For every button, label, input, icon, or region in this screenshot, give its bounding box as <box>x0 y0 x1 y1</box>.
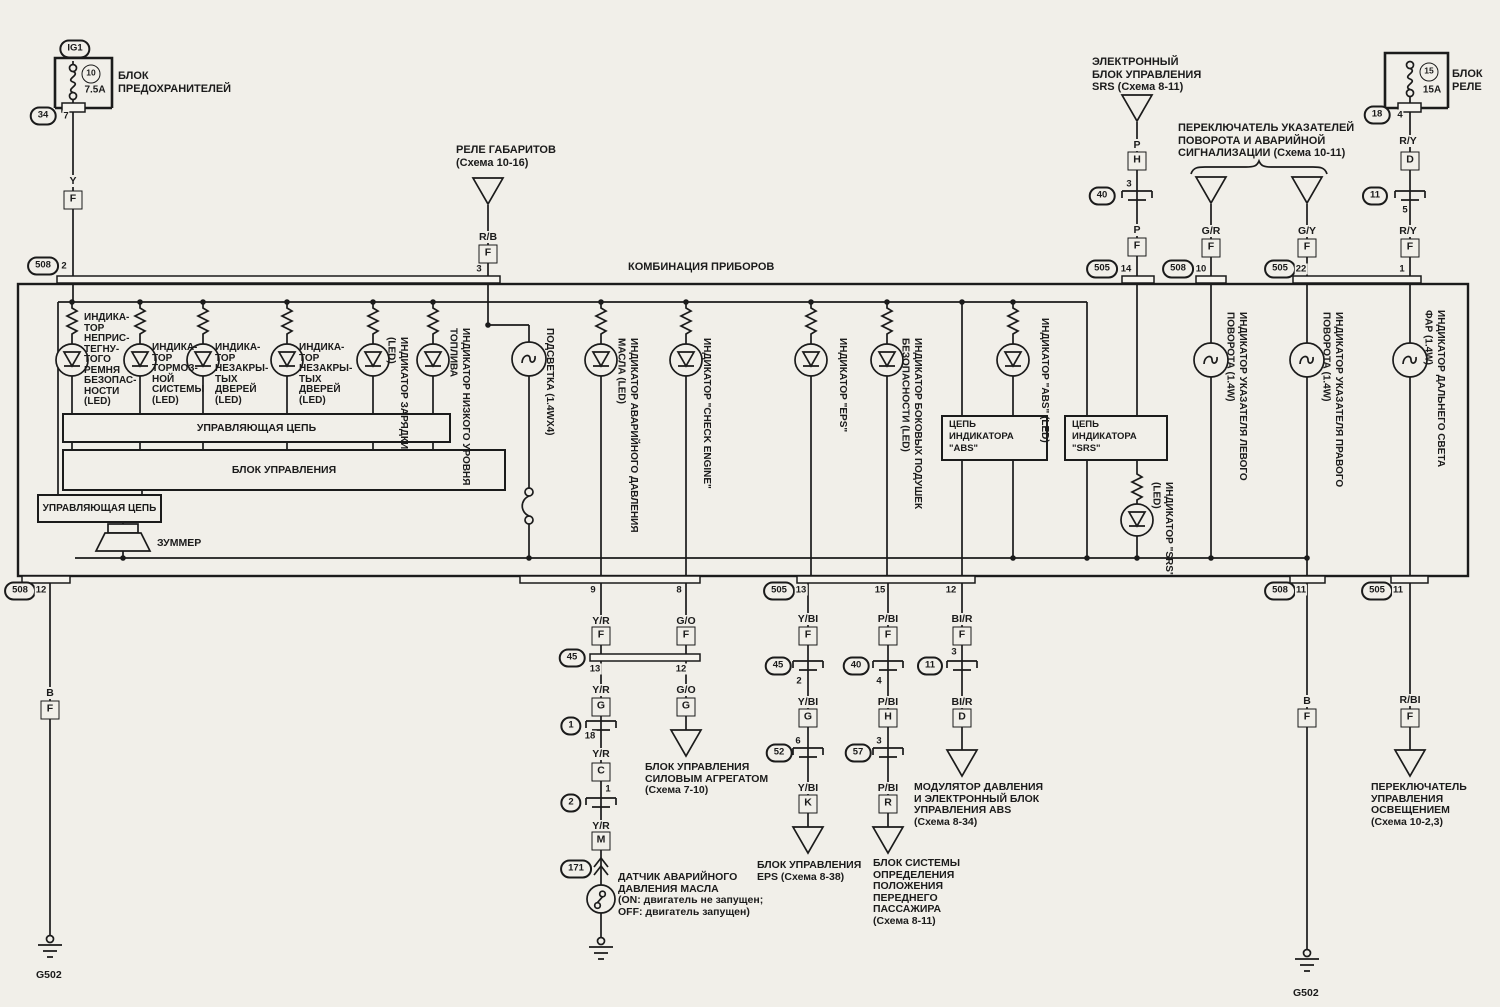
pin-letter-box: C <box>592 763 611 782</box>
wire-color: Y/BI <box>796 696 820 708</box>
source-arrow-icon <box>473 178 503 204</box>
dest-arrow-icon <box>793 827 823 853</box>
source-arrow-icon <box>1292 177 1322 203</box>
oil-pressure-sensor-icon <box>587 885 615 913</box>
source-arrow-icon <box>1196 177 1226 203</box>
pin-letter-box: F <box>1298 709 1317 728</box>
oil-sensor-label: ДАТЧИК АВАРИЙНОГО ДАВЛЕНИЯ МАСЛА (ON: дв… <box>618 872 778 918</box>
pin-letter-box: F <box>1128 238 1147 257</box>
wire-color: B <box>1301 695 1313 707</box>
pin-number: 14 <box>1120 264 1133 275</box>
dest-arrow-icon <box>947 750 977 776</box>
relay-block-label: БЛОК РЕЛЕ <box>1452 68 1483 93</box>
pin-letter-box: F <box>592 627 611 646</box>
indicator-label: ИНДИКАТОР "EPS" <box>821 338 848 450</box>
pin-number: 6 <box>794 736 801 747</box>
ground-icon <box>1295 950 1319 972</box>
pin-letter-box: M <box>592 832 611 851</box>
pin-number: 11 <box>1295 585 1307 596</box>
pin-letter-box: D <box>1401 152 1420 171</box>
pin-letter-box: F <box>953 627 972 646</box>
control-circuit-left-box: УПРАВЛЯЮЩАЯ ЦЕПЬ <box>37 494 162 523</box>
ground-label: G502 <box>36 970 62 981</box>
fuse-amps: 7.5A <box>83 85 106 96</box>
wire-color: R/Y <box>1397 135 1419 147</box>
wire-color: R/BI <box>1398 694 1423 706</box>
connector-oval: 11 <box>1362 187 1388 206</box>
pin-letter-box: F <box>1401 709 1420 728</box>
wire-color: P/BI <box>876 613 900 625</box>
indicator-label: ИНДИКАТОР НИЗКОГО УРОВНЯ ТОПЛИВА <box>444 328 471 490</box>
control-unit-box: БЛОК УПРАВЛЕНИЯ <box>62 449 506 491</box>
connector-oval: 52 <box>766 744 793 763</box>
connector-oval: 508 <box>1162 260 1194 279</box>
indicator-label: ИНДИКАТОР УКАЗАТЕЛЯ ЛЕВОГО ПОВОРОТА (1.4… <box>1221 312 1248 512</box>
wire-color: Y/R <box>590 748 612 760</box>
indicator-label: ПОДСВЕТКА (1.4WX4) <box>540 328 555 490</box>
indicator-label: ИНДИКАТОР "ABS" (LED) <box>1023 318 1050 468</box>
wire-color: B <box>44 687 56 699</box>
srs-ecu-label: ЭЛЕКТРОННЫЙ БЛОК УПРАВЛЕНИЯ SRS (Схема 8… <box>1092 56 1201 94</box>
connector-oval: 40 <box>843 657 870 676</box>
connector-oval: 505 <box>763 582 795 601</box>
fuse-block-outline <box>55 58 112 108</box>
pin-letter-box: K <box>799 795 818 814</box>
indicator-label: ИНДИКАТОР "CHECK ENGINE" <box>697 338 712 570</box>
pin-letter-box: F <box>64 191 83 210</box>
pin-number: 18 <box>584 731 597 742</box>
pin-letter-box: F <box>677 627 696 646</box>
pin-letter-box: D <box>953 709 972 728</box>
pin-number: 4 <box>1396 110 1403 121</box>
wire-color: BI/R <box>950 696 975 708</box>
parking-relay-label: РЕЛЕ ГАБАРИТОВ (Схема 10-16) <box>456 144 556 169</box>
connector-oval: 1 <box>560 717 581 736</box>
light-switch-label: ПЕРЕКЛЮЧАТЕЛЬ УПРАВЛЕНИЯ ОСВЕЩЕНИЕМ (Схе… <box>1371 782 1491 828</box>
connector-oval: 34 <box>30 107 57 126</box>
dest-arrow-icon <box>1395 750 1425 776</box>
pin-letter-box: F <box>479 245 498 264</box>
ground-icon <box>589 938 613 960</box>
indicator-label: ИНДИКА- ТОР ТОРМОЗ- НОЙ СИСТЕМЫ (LED) <box>152 343 210 406</box>
pin-number: 2 <box>60 261 67 272</box>
connector-oval: 40 <box>1089 187 1116 206</box>
pin-letter-box: G <box>592 698 611 717</box>
pin-letter-box: G <box>799 709 818 728</box>
eps-label: БЛОК УПРАВЛЕНИЯ EPS (Схема 8-38) <box>757 860 882 883</box>
pin-letter-box: F <box>1202 239 1221 258</box>
ground-icon <box>38 936 62 958</box>
wire-color: G/O <box>674 684 697 696</box>
indicator-label: ИНДИКАТОР АВАРИЙНОГО ДАВЛЕНИЯ МАСЛА (LED… <box>612 338 639 556</box>
pin-number: 12 <box>675 664 688 675</box>
connector-oval: 508 <box>1264 582 1296 601</box>
connector-oval: 45 <box>559 649 586 668</box>
fuse-amps: 15A <box>1422 85 1442 96</box>
buzzer-icon <box>96 524 150 551</box>
wire-color: Y/BI <box>796 613 820 625</box>
page-title: КОМБИНАЦИЯ ПРИБОРОВ <box>628 261 774 274</box>
wiring-diagram: УПРАВЛЯЮЩАЯ ЦЕПЬ БЛОК УПРАВЛЕНИЯ УПРАВЛЯ… <box>0 0 1500 1007</box>
pin-number: 3 <box>1125 179 1132 190</box>
fuse-number: 10 <box>82 65 101 84</box>
pin-number: 12 <box>945 585 958 596</box>
pin-number: 3 <box>950 647 957 658</box>
pin-number: 1 <box>1398 264 1405 275</box>
wire-color: Y/R <box>590 684 612 696</box>
wire-color: P/BI <box>876 782 900 794</box>
indicator-label: ИНДИКА- ТОР НЕЗАКРЫ- ТЫХ ДВЕРЕЙ (LED) <box>215 343 277 406</box>
pin-number: 5 <box>1401 205 1408 216</box>
wire-color: P <box>1131 224 1142 236</box>
connector-oval: 2 <box>560 794 581 813</box>
srs-indicator-circuit-box: ЦЕПЬ ИНДИКАТОРА "SRS" <box>1064 415 1168 461</box>
fuse-block-label: БЛОК ПРЕДОХРАНИТЕЛЕЙ <box>118 70 231 95</box>
indicator-label: ИНДИКАТОР УКАЗАТЕЛЯ ПРАВОГО ПОВОРОТА (1.… <box>1317 312 1344 512</box>
fuse-icon <box>70 65 77 100</box>
pin-letter-box: F <box>41 701 60 720</box>
pin-number: 3 <box>875 736 882 747</box>
pin-number: 12 <box>35 585 48 596</box>
indicator-label: ИНДИКАТОР ДАЛЬНЕГО СВЕТА ФАР (1.4W) <box>1419 310 1446 482</box>
pin-number: 4 <box>875 676 882 687</box>
indicator-label: ИНДИКАТОР ЗАРЯДКИ (LED) <box>382 337 409 467</box>
connector-oval: 505 <box>1086 260 1118 279</box>
pin-number: 9 <box>589 585 596 596</box>
pin-letter-box: H <box>879 709 898 728</box>
pin-number: 13 <box>589 664 602 675</box>
brace <box>1191 161 1327 174</box>
wire-color: G/R <box>1200 225 1223 237</box>
indicator-label: ИНДИКА- ТОР НЕПРИС- ТЕГНУ- ТОГО РЕМНЯ БЕ… <box>84 313 142 408</box>
indicator-label: ИНДИКАТОР БОКОВЫХ ПОДУШЕК БЕЗОПАСНОСТИ (… <box>896 338 923 548</box>
connector-oval: 45 <box>765 657 792 676</box>
turn-switch-label: ПЕРЕКЛЮЧАТЕЛЬ УКАЗАТЕЛЕЙ ПОВОРОТА И АВАР… <box>1178 122 1354 160</box>
illumination-switch-icon <box>522 488 533 524</box>
pin-letter-box: F <box>879 627 898 646</box>
connector-oval: 505 <box>1264 260 1296 279</box>
connector-oval: 18 <box>1364 106 1391 125</box>
connector-oval: 508 <box>4 582 36 601</box>
wire-color: P/BI <box>876 696 900 708</box>
wire-color: R/B <box>477 231 499 243</box>
ground-label: G502 <box>1293 988 1319 999</box>
connector-oval: IG1 <box>59 40 90 59</box>
pin-number: 7 <box>62 111 69 122</box>
relay-block-outline <box>1385 53 1448 108</box>
symbols <box>38 62 1427 972</box>
wire-color: BI/R <box>950 613 975 625</box>
connector-oval: 508 <box>27 257 59 276</box>
wire-color: R/Y <box>1397 225 1419 237</box>
pin-letter-box: G <box>677 698 696 717</box>
pin-number: 3 <box>475 264 482 275</box>
pin-letter-box: F <box>799 627 818 646</box>
powertrain-label: БЛОК УПРАВЛЕНИЯ СИЛОВЫМ АГРЕГАТОМ (Схема… <box>645 762 790 797</box>
passenger-system-label: БЛОК СИСТЕМЫ ОПРЕДЕЛЕНИЯ ПОЛОЖЕНИЯ ПЕРЕД… <box>873 858 983 927</box>
pin-number: 13 <box>795 585 808 596</box>
pin-number: 15 <box>874 585 887 596</box>
fuse-icon <box>1407 62 1414 97</box>
wire-color: Y/R <box>590 820 612 832</box>
indicator-label: ИНДИКА- ТОР НЕЗАКРЫ- ТЫХ ДВЕРЕЙ (LED) <box>299 343 361 406</box>
connector-oval: 57 <box>845 744 872 763</box>
connector-oval: 505 <box>1361 582 1393 601</box>
pin-number: 2 <box>795 676 802 687</box>
dest-arrow-icon <box>873 827 903 853</box>
pin-number: 10 <box>1195 264 1208 275</box>
connector-oval: 11 <box>917 657 943 676</box>
pin-number: 22 <box>1295 264 1308 275</box>
pin-number: 8 <box>675 585 682 596</box>
pin-number: 1 <box>604 784 611 795</box>
wire-color: Y/BI <box>796 782 820 794</box>
fuse-number: 15 <box>1420 63 1439 82</box>
pin-letter-box: F <box>1401 239 1420 258</box>
connector-oval: 171 <box>560 860 592 879</box>
abs-modulator-label: МОДУЛЯТОР ДАВЛЕНИЯ И ЭЛЕКТРОННЫЙ БЛОК УП… <box>914 782 1064 828</box>
wire-color: Y/R <box>590 615 612 627</box>
pin-letter-box: H <box>1128 152 1147 171</box>
wire-color: P <box>1131 139 1142 151</box>
pin-number: 11 <box>1392 585 1404 596</box>
wire-color: Y <box>67 175 78 187</box>
pin-letter-box: F <box>1298 239 1317 258</box>
source-arrow-icon <box>1122 95 1152 121</box>
pin-letter-box: R <box>879 795 898 814</box>
dest-arrow-icon <box>671 730 701 756</box>
indicator-label: ИНДИКАТОР "SRS" (LED) <box>1147 482 1174 577</box>
buzzer-label: ЗУММЕР <box>157 538 201 549</box>
wire-color: G/Y <box>1296 225 1318 237</box>
wire-color: G/O <box>674 615 697 627</box>
